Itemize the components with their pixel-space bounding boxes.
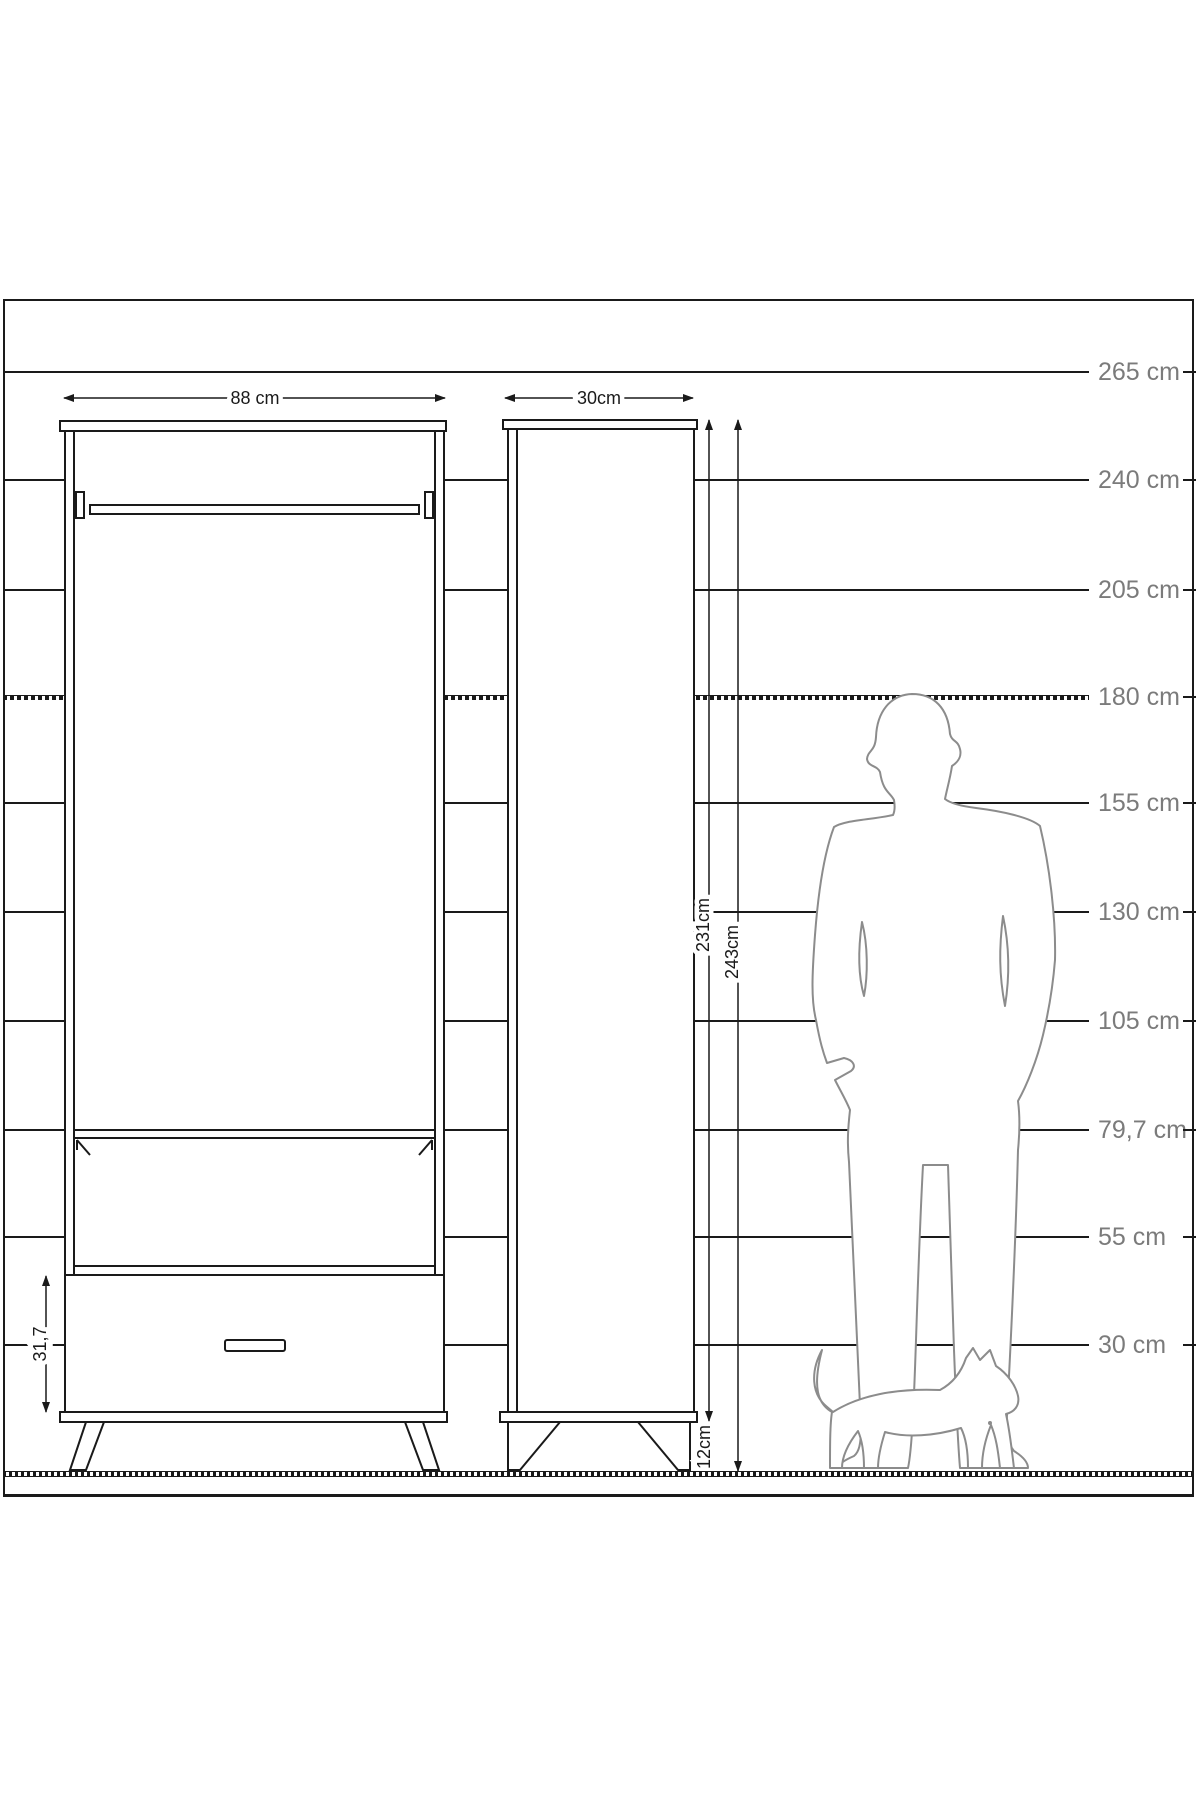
side-top-board bbox=[503, 420, 697, 429]
front-leg-right bbox=[405, 1422, 439, 1470]
front-width-label: 88 cm bbox=[230, 388, 279, 408]
total-height-label: 243cm bbox=[722, 925, 742, 979]
cat-eye bbox=[988, 1421, 992, 1425]
man-silhouette bbox=[813, 694, 1056, 1468]
body-height-label: 231cm bbox=[693, 898, 713, 952]
technical-drawing: 88 cm 30cm 31,7 231cm 243cm 12cm bbox=[0, 0, 1200, 1800]
front-shelf bbox=[74, 1130, 435, 1138]
front-bottom-board bbox=[60, 1412, 447, 1422]
rod-bracket-left bbox=[76, 492, 84, 518]
drawer-handle bbox=[225, 1340, 285, 1351]
dimension-diagram: 265 cm240 cm205 cm180 cm155 cm130 cm105 … bbox=[0, 0, 1200, 1800]
front-leg-left bbox=[70, 1422, 104, 1470]
front-view-wardrobe bbox=[60, 421, 447, 1470]
rod-bracket-right bbox=[425, 492, 433, 518]
floor-line bbox=[3, 1471, 1194, 1477]
side-body bbox=[508, 429, 694, 1412]
front-body bbox=[65, 431, 444, 1412]
side-bottom-board bbox=[500, 1412, 697, 1422]
side-leg-front bbox=[638, 1422, 690, 1470]
front-top-board bbox=[60, 421, 446, 431]
front-divider bbox=[74, 1266, 435, 1275]
man-outline bbox=[813, 694, 1056, 1468]
hanging-rod bbox=[90, 505, 419, 514]
drawer-height-label: 31,7 bbox=[30, 1326, 50, 1361]
side-leg-back bbox=[508, 1422, 560, 1470]
side-depth-label: 30cm bbox=[577, 388, 621, 408]
side-view-wardrobe bbox=[500, 420, 697, 1470]
leg-height-label: 12cm bbox=[694, 1425, 714, 1469]
